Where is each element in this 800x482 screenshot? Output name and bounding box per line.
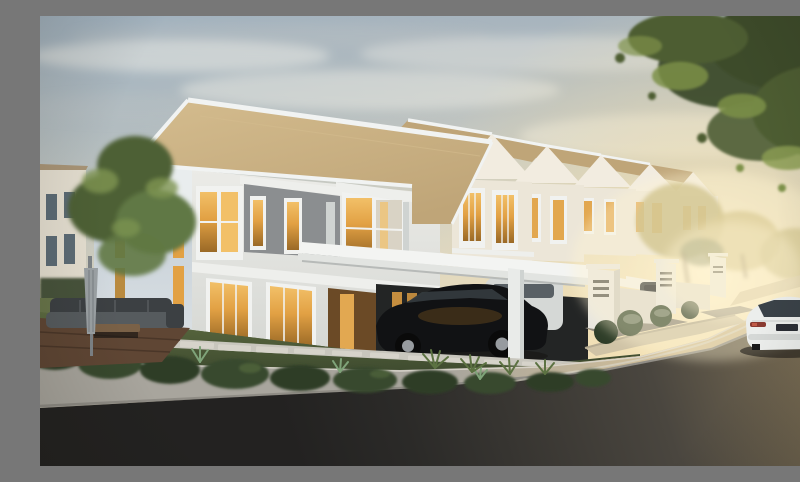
vignette (40, 16, 800, 466)
terrace-house-render (40, 16, 800, 466)
